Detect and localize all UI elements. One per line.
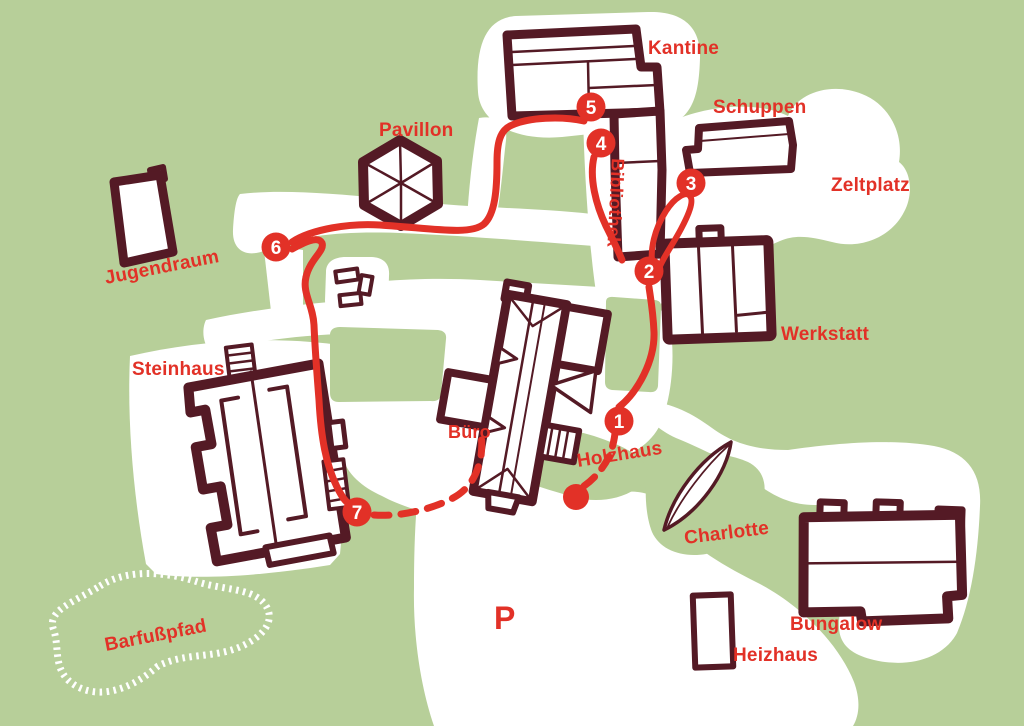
waypoint-2-number: 2 [644, 262, 655, 283]
waypoint-marker-2: 2 [635, 257, 664, 286]
waypoint-marker-3: 3 [677, 169, 706, 198]
waypoint-6-number: 6 [271, 238, 282, 259]
waypoint-3-number: 3 [686, 174, 697, 195]
waypoint-marker-7: 7 [343, 498, 372, 527]
waypoint-5-number: 5 [586, 98, 597, 119]
waypoint-marker-5: 5 [577, 93, 606, 122]
site-map-canvas: 1 2 3 4 5 6 7 Kantine Schuppen Zelt [0, 0, 1024, 726]
waypoint-4-number: 4 [596, 134, 607, 155]
label-steinhaus: Steinhaus [132, 359, 225, 380]
jugendraum-building [114, 167, 173, 263]
label-werkstatt: Werkstatt [781, 324, 870, 345]
label-buero: Büro [448, 422, 491, 442]
label-schuppen: Schuppen [713, 97, 806, 118]
label-parking: P [494, 600, 516, 636]
waypoint-7-number: 7 [352, 503, 363, 524]
label-pavillon: Pavillon [379, 120, 453, 141]
bungalow-building [800, 499, 965, 625]
label-bungalow: Bungalow [790, 614, 882, 635]
pavillon-building [363, 140, 438, 226]
waypoint-marker-1: 1 [605, 407, 634, 436]
waypoint-marker-4: 4 [587, 129, 616, 158]
waypoint-marker-6: 6 [262, 233, 291, 262]
label-zeltplatz: Zeltplatz [831, 175, 910, 196]
schuppen-building [686, 121, 793, 173]
label-heizhaus: Heizhaus [733, 645, 818, 666]
site-map: 1 2 3 4 5 6 7 Kantine Schuppen Zelt [0, 0, 1024, 726]
waypoint-1-number: 1 [614, 412, 625, 433]
heizhaus-building [693, 594, 733, 667]
label-kantine: Kantine [648, 38, 719, 59]
lawn-patch-west [330, 327, 446, 402]
route-start-dot [563, 484, 589, 510]
werkstatt-building [664, 226, 772, 340]
